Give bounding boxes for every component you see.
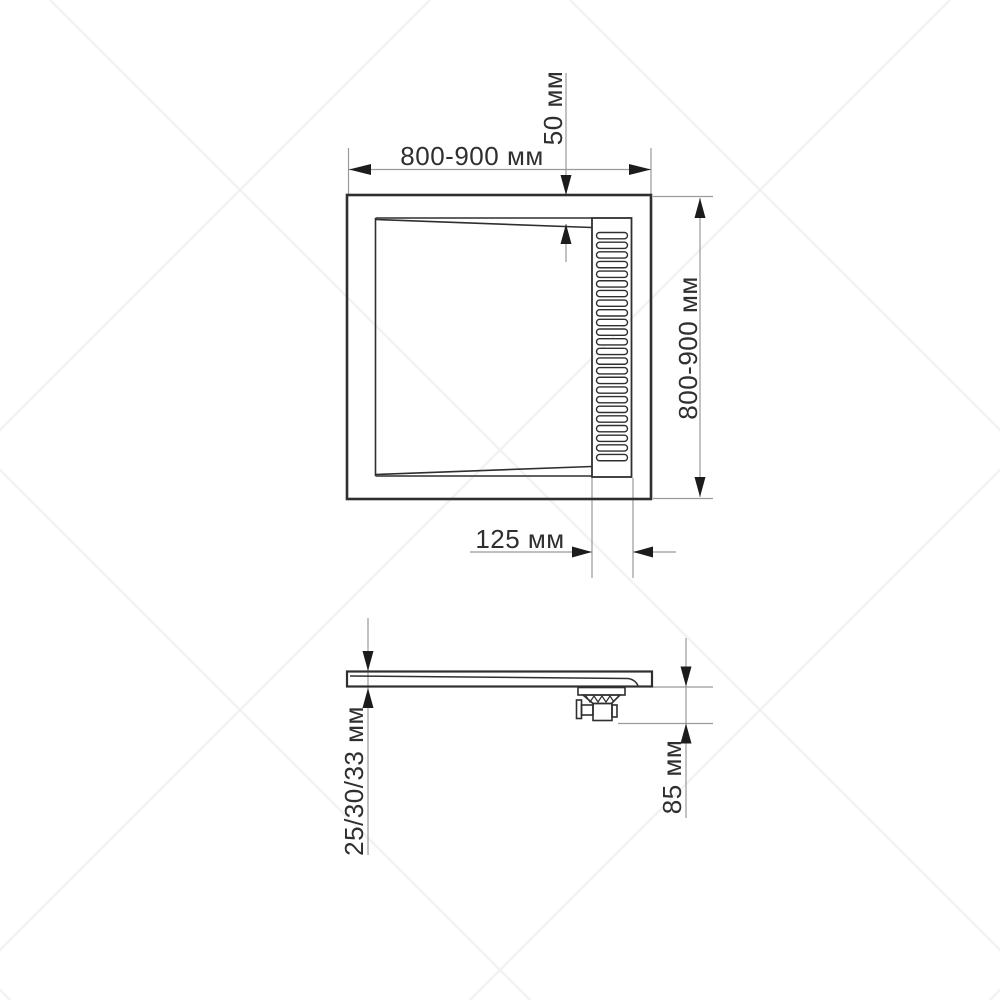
grate-slat: [597, 261, 628, 267]
grate-slat: [597, 426, 628, 432]
dimension-label-trap-height: 85 мм: [658, 732, 686, 822]
dimension-label-height: 800-900 мм: [674, 273, 702, 423]
arrow-up-icon: [695, 198, 706, 218]
grate-slat: [597, 329, 628, 335]
arrow-left-icon: [633, 547, 653, 558]
siphon-box: [593, 704, 612, 721]
dimension-label-thickness: 25/30/33 мм: [340, 701, 368, 861]
grate-slat: [597, 242, 628, 248]
tray-basin: [376, 218, 593, 476]
side-view: [347, 672, 652, 721]
arrow-left-icon: [349, 164, 371, 175]
drain-ribs: [586, 696, 614, 702]
grate-slat: [597, 271, 628, 277]
grate-slat: [597, 233, 628, 239]
grate-slat: [597, 445, 628, 451]
arrow-down-icon: [561, 175, 572, 195]
grate-slat: [597, 300, 628, 306]
grate-slat: [597, 435, 628, 441]
grate-slat: [597, 358, 628, 364]
tray-outer-edge: [347, 195, 651, 499]
grate-slat: [597, 406, 628, 412]
arrow-down-icon: [363, 651, 374, 671]
drain-flange: [578, 688, 625, 696]
outlet-pipe: [582, 705, 594, 715]
grate-slat: [597, 281, 628, 287]
dimension-label-grate-width: 125 мм: [460, 525, 580, 553]
grate-slat: [597, 310, 628, 316]
dimension-label-grate-offset: 50 мм: [539, 63, 567, 153]
grate-slat: [597, 416, 628, 422]
grate-slat: [597, 397, 628, 403]
grate-slat: [597, 252, 628, 258]
plan-view: [347, 195, 651, 499]
grate-slat: [597, 454, 628, 460]
tray-floor-slope: [350, 676, 638, 686]
arrow-down-icon: [695, 477, 706, 497]
siphon-tab: [612, 705, 617, 717]
drain-grate-slats: [597, 233, 628, 461]
arrow-right-icon: [629, 164, 651, 175]
grate-slat: [597, 348, 628, 354]
drawing-canvas: 800-900 мм 50 мм 800-900 мм 125 мм 25/30…: [0, 0, 1000, 1000]
grate-slat: [597, 339, 628, 345]
grate-slat: [597, 319, 628, 325]
arrow-down-icon: [681, 667, 692, 687]
grate-slat: [597, 290, 628, 296]
grate-slat: [597, 377, 628, 383]
grate-slat: [597, 387, 628, 393]
grate-slat: [597, 368, 628, 374]
